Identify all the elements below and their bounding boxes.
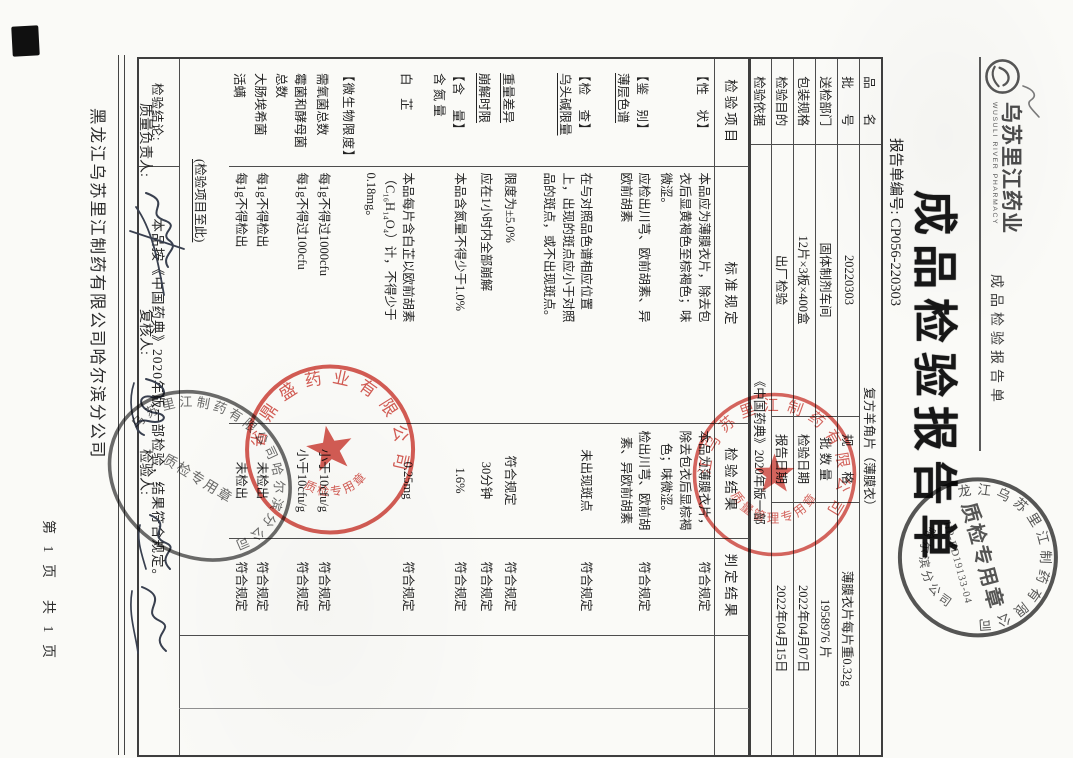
- standard-cell: 限度为±5.0%: [497, 166, 521, 423]
- quality-manager-signature: [124, 185, 190, 301]
- subitem-label: 重量差异: [501, 69, 520, 160]
- info-label-basis: 检验依据: [749, 58, 772, 144]
- standard-cell: 本品含氮量不得少于1.0%: [419, 166, 471, 423]
- info-label-purpose: 检验目的: [772, 58, 794, 144]
- item-label: 【鉴 别】: [635, 69, 654, 160]
- judgement-cell: 符合规定: [597, 538, 655, 635]
- judgement-cell: 符合规定: [419, 538, 471, 635]
- subitem-label: 白 芷: [399, 69, 418, 160]
- subitem-label: 乌头碱限量: [558, 69, 577, 160]
- page-number: 第 1 页 共 1 页: [39, 520, 59, 662]
- judgement-cell: 符合规定: [360, 538, 418, 635]
- standard-cell: 应在1小时内全部崩解: [471, 166, 497, 423]
- qc-round-stamp: 黑龙江乌苏里江制药有限公司 哈尔滨分公司 质检专用章 HP-RD19133-04: [871, 456, 1073, 661]
- result-cell: 30分钟: [471, 423, 497, 538]
- item-label: 【含 量】: [451, 69, 470, 160]
- table-row: 重量差异 限度为±5.0% 符合规定 符合规定: [497, 58, 521, 756]
- judgement-cell: 符合规定: [312, 538, 334, 635]
- result-cell: 符合规定: [497, 423, 521, 538]
- info-value-purpose: 出厂检验: [772, 144, 794, 416]
- svg-text:质量管理专用章: 质量管理专用章: [728, 488, 821, 525]
- info-label-name: 品 名: [860, 58, 883, 144]
- subitem-label: 需氧菌总数: [314, 69, 333, 160]
- table-row: 崩解时限 应在1小时内全部崩解 30分钟 符合规定: [471, 58, 497, 756]
- stamp-center-text: 质检专用章: [160, 450, 237, 507]
- judgement-cell: 符合规定: [497, 538, 521, 635]
- item-label: 【检 查】: [577, 69, 596, 160]
- subitem-label: 薄层色谱: [616, 69, 635, 160]
- footer-rule: [118, 55, 125, 755]
- table-row: 【含 量】 含 氮 量 本品含氮量不得少于1.0% 1.6% 符合规定: [419, 58, 471, 756]
- info-value-pack: 12片×3板×400盒: [794, 144, 816, 416]
- judgement-cell: 符合规定: [471, 538, 497, 635]
- scanned-report-viewport: 乌苏里江药业 WUSULI RIVER PHARMACY 成品检验报告单 成品检…: [0, 0, 1073, 758]
- standard-cell: 应检出川芎、欧前胡素、异欧前胡素: [597, 166, 655, 423]
- item-label: 【微生物限度】: [340, 69, 359, 160]
- stamp-center-text: 质量管理专用章: [728, 488, 821, 525]
- info-value-name: 复方羊角片（薄膜衣）: [860, 144, 883, 756]
- subitem-label: 含 氮 量: [432, 69, 451, 160]
- report-number: 报告单编号: CP056-220303: [886, 138, 907, 306]
- standard-cell: 本品应为薄膜衣片，除去包衣后显黄褐色至棕褐色；味微涩。: [655, 166, 715, 423]
- result-cell: 检出川芎、欧前胡素、异欧前胡素: [597, 423, 655, 538]
- end-of-items-note: (检验项目至此): [193, 159, 207, 242]
- info-label-dept: 送检部门: [816, 58, 838, 144]
- quality-manager-label: 质量负责人:: [136, 103, 156, 177]
- subitem-label: 大肠埃希菌: [252, 69, 271, 160]
- report-page: 乌苏里江药业 WUSULI RIVER PHARMACY 成品检验报告单 成品检…: [0, 0, 1073, 758]
- star-icon: [755, 454, 795, 492]
- item-label: 【性 状】: [694, 69, 713, 160]
- inspector-signature-2: [126, 581, 178, 659]
- standard-cell: 在与对照品色谱相应位置上，出现的斑点应小于对照品的斑点，或不出现斑点。: [521, 166, 597, 423]
- company-name: 黑龙江乌苏里江制药有限公司哈尔滨分公司: [87, 108, 111, 460]
- table-row: 品 名 复方羊角片（薄膜衣）: [860, 58, 883, 756]
- info-label-pack: 包装规格: [794, 58, 816, 144]
- table-row: 【检 查】 乌头碱限量 在与对照品色谱相应位置上，出现的斑点应小于对照品的斑点，…: [521, 58, 597, 756]
- info-value-dept: 固体制剂车间: [816, 144, 838, 416]
- reviewer-label: 复核人:: [136, 309, 156, 355]
- doc-type-label: 成品检验报告单: [987, 274, 1007, 407]
- quality-management-stamp: 黑龙江乌苏里江制药有限公司 质量管理专用章: [690, 390, 860, 565]
- subitem-label: 崩解时限: [477, 69, 496, 160]
- col-header-standard: 标准规定: [715, 166, 751, 423]
- col-header-blank2: [715, 708, 751, 756]
- scan-corner-artifact: [11, 25, 40, 56]
- logo-company-sub: WUSULI RIVER PHARMACY: [991, 102, 998, 234]
- subitem-label: 霉菌和酵母菌总数: [273, 69, 311, 160]
- col-header-blank1: [715, 635, 751, 708]
- letterhead-rule: [980, 57, 982, 451]
- pen-scribble-mark: [1013, 80, 1047, 122]
- subitem-label: 活螨: [231, 69, 250, 160]
- col-header-item: 检验项目: [715, 58, 751, 166]
- table-row: 【鉴 别】 薄层色谱 应检出川芎、欧前胡素、异欧前胡素 检出川芎、欧前胡素、异欧…: [597, 58, 655, 756]
- info-label-batch: 批 号: [838, 58, 860, 144]
- info-value-batch: 20220303: [838, 144, 860, 416]
- result-cell: 未出现斑点: [521, 423, 597, 538]
- judgement-cell: 符合规定: [521, 538, 597, 635]
